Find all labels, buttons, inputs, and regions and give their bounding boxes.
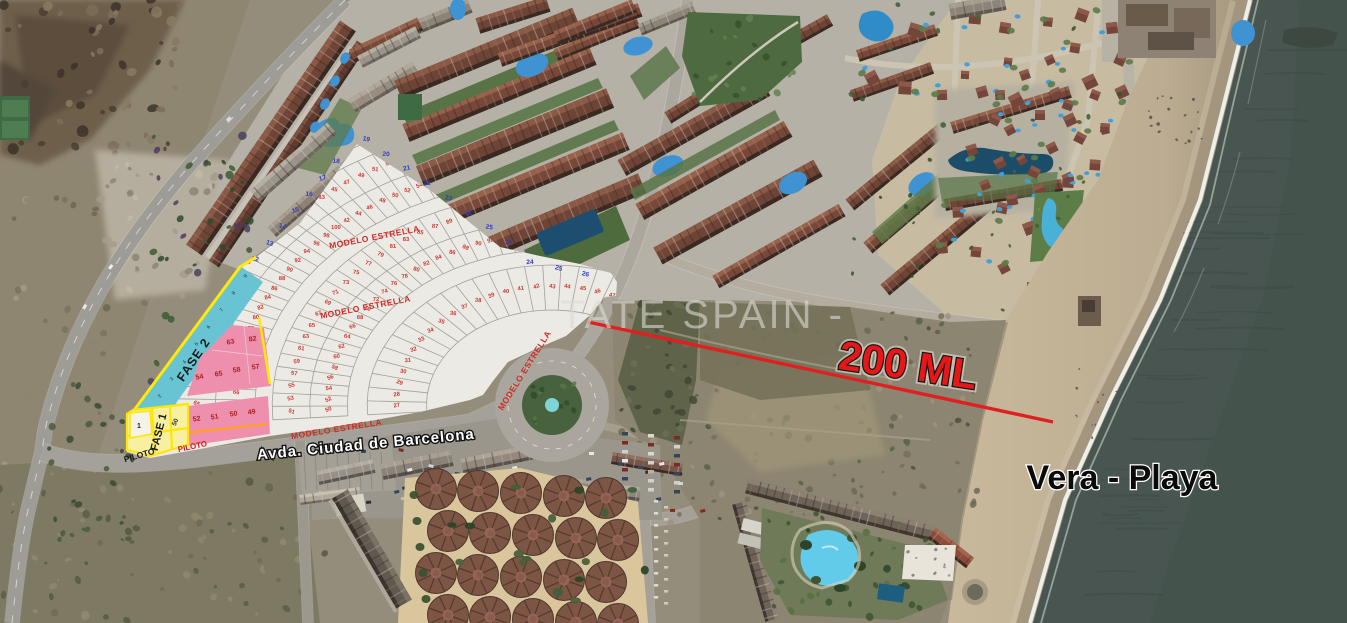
- svg-text:57: 57: [251, 363, 260, 371]
- svg-text:50: 50: [229, 410, 238, 418]
- svg-text:88: 88: [279, 276, 286, 282]
- svg-text:Vera - Playa: Vera - Playa: [1027, 459, 1219, 497]
- svg-text:49: 49: [247, 408, 256, 416]
- svg-text:65: 65: [214, 370, 223, 378]
- svg-text:22: 22: [423, 180, 431, 187]
- svg-text:24: 24: [526, 259, 534, 266]
- svg-text:57: 57: [291, 371, 298, 378]
- svg-text:40: 40: [503, 289, 509, 295]
- svg-text:24: 24: [464, 210, 472, 217]
- svg-text:87: 87: [432, 224, 439, 230]
- svg-text:81: 81: [390, 244, 397, 250]
- svg-text:90: 90: [474, 240, 481, 247]
- svg-text:83: 83: [403, 237, 410, 243]
- svg-text:TATE SPAIN -: TATE SPAIN -: [560, 293, 845, 337]
- svg-text:50: 50: [392, 193, 399, 200]
- svg-text:68: 68: [357, 315, 364, 321]
- svg-text:100: 100: [331, 225, 341, 231]
- svg-text:51: 51: [210, 413, 219, 421]
- svg-text:20: 20: [382, 151, 390, 158]
- svg-text:52: 52: [192, 415, 201, 423]
- svg-text:92: 92: [294, 258, 301, 265]
- svg-text:27: 27: [393, 403, 400, 410]
- svg-text:31: 31: [405, 358, 413, 364]
- svg-text:18: 18: [332, 158, 340, 166]
- svg-text:26: 26: [505, 239, 513, 247]
- svg-text:73: 73: [343, 280, 350, 286]
- svg-text:1: 1: [137, 423, 141, 430]
- svg-text:30: 30: [399, 369, 406, 376]
- svg-text:52: 52: [403, 188, 410, 195]
- svg-text:45: 45: [580, 286, 587, 292]
- svg-text:65: 65: [309, 323, 317, 329]
- svg-text:42: 42: [343, 218, 350, 225]
- svg-text:82: 82: [248, 335, 257, 343]
- svg-text:16: 16: [305, 191, 313, 199]
- svg-text:76: 76: [391, 281, 398, 287]
- svg-text:58: 58: [232, 366, 241, 374]
